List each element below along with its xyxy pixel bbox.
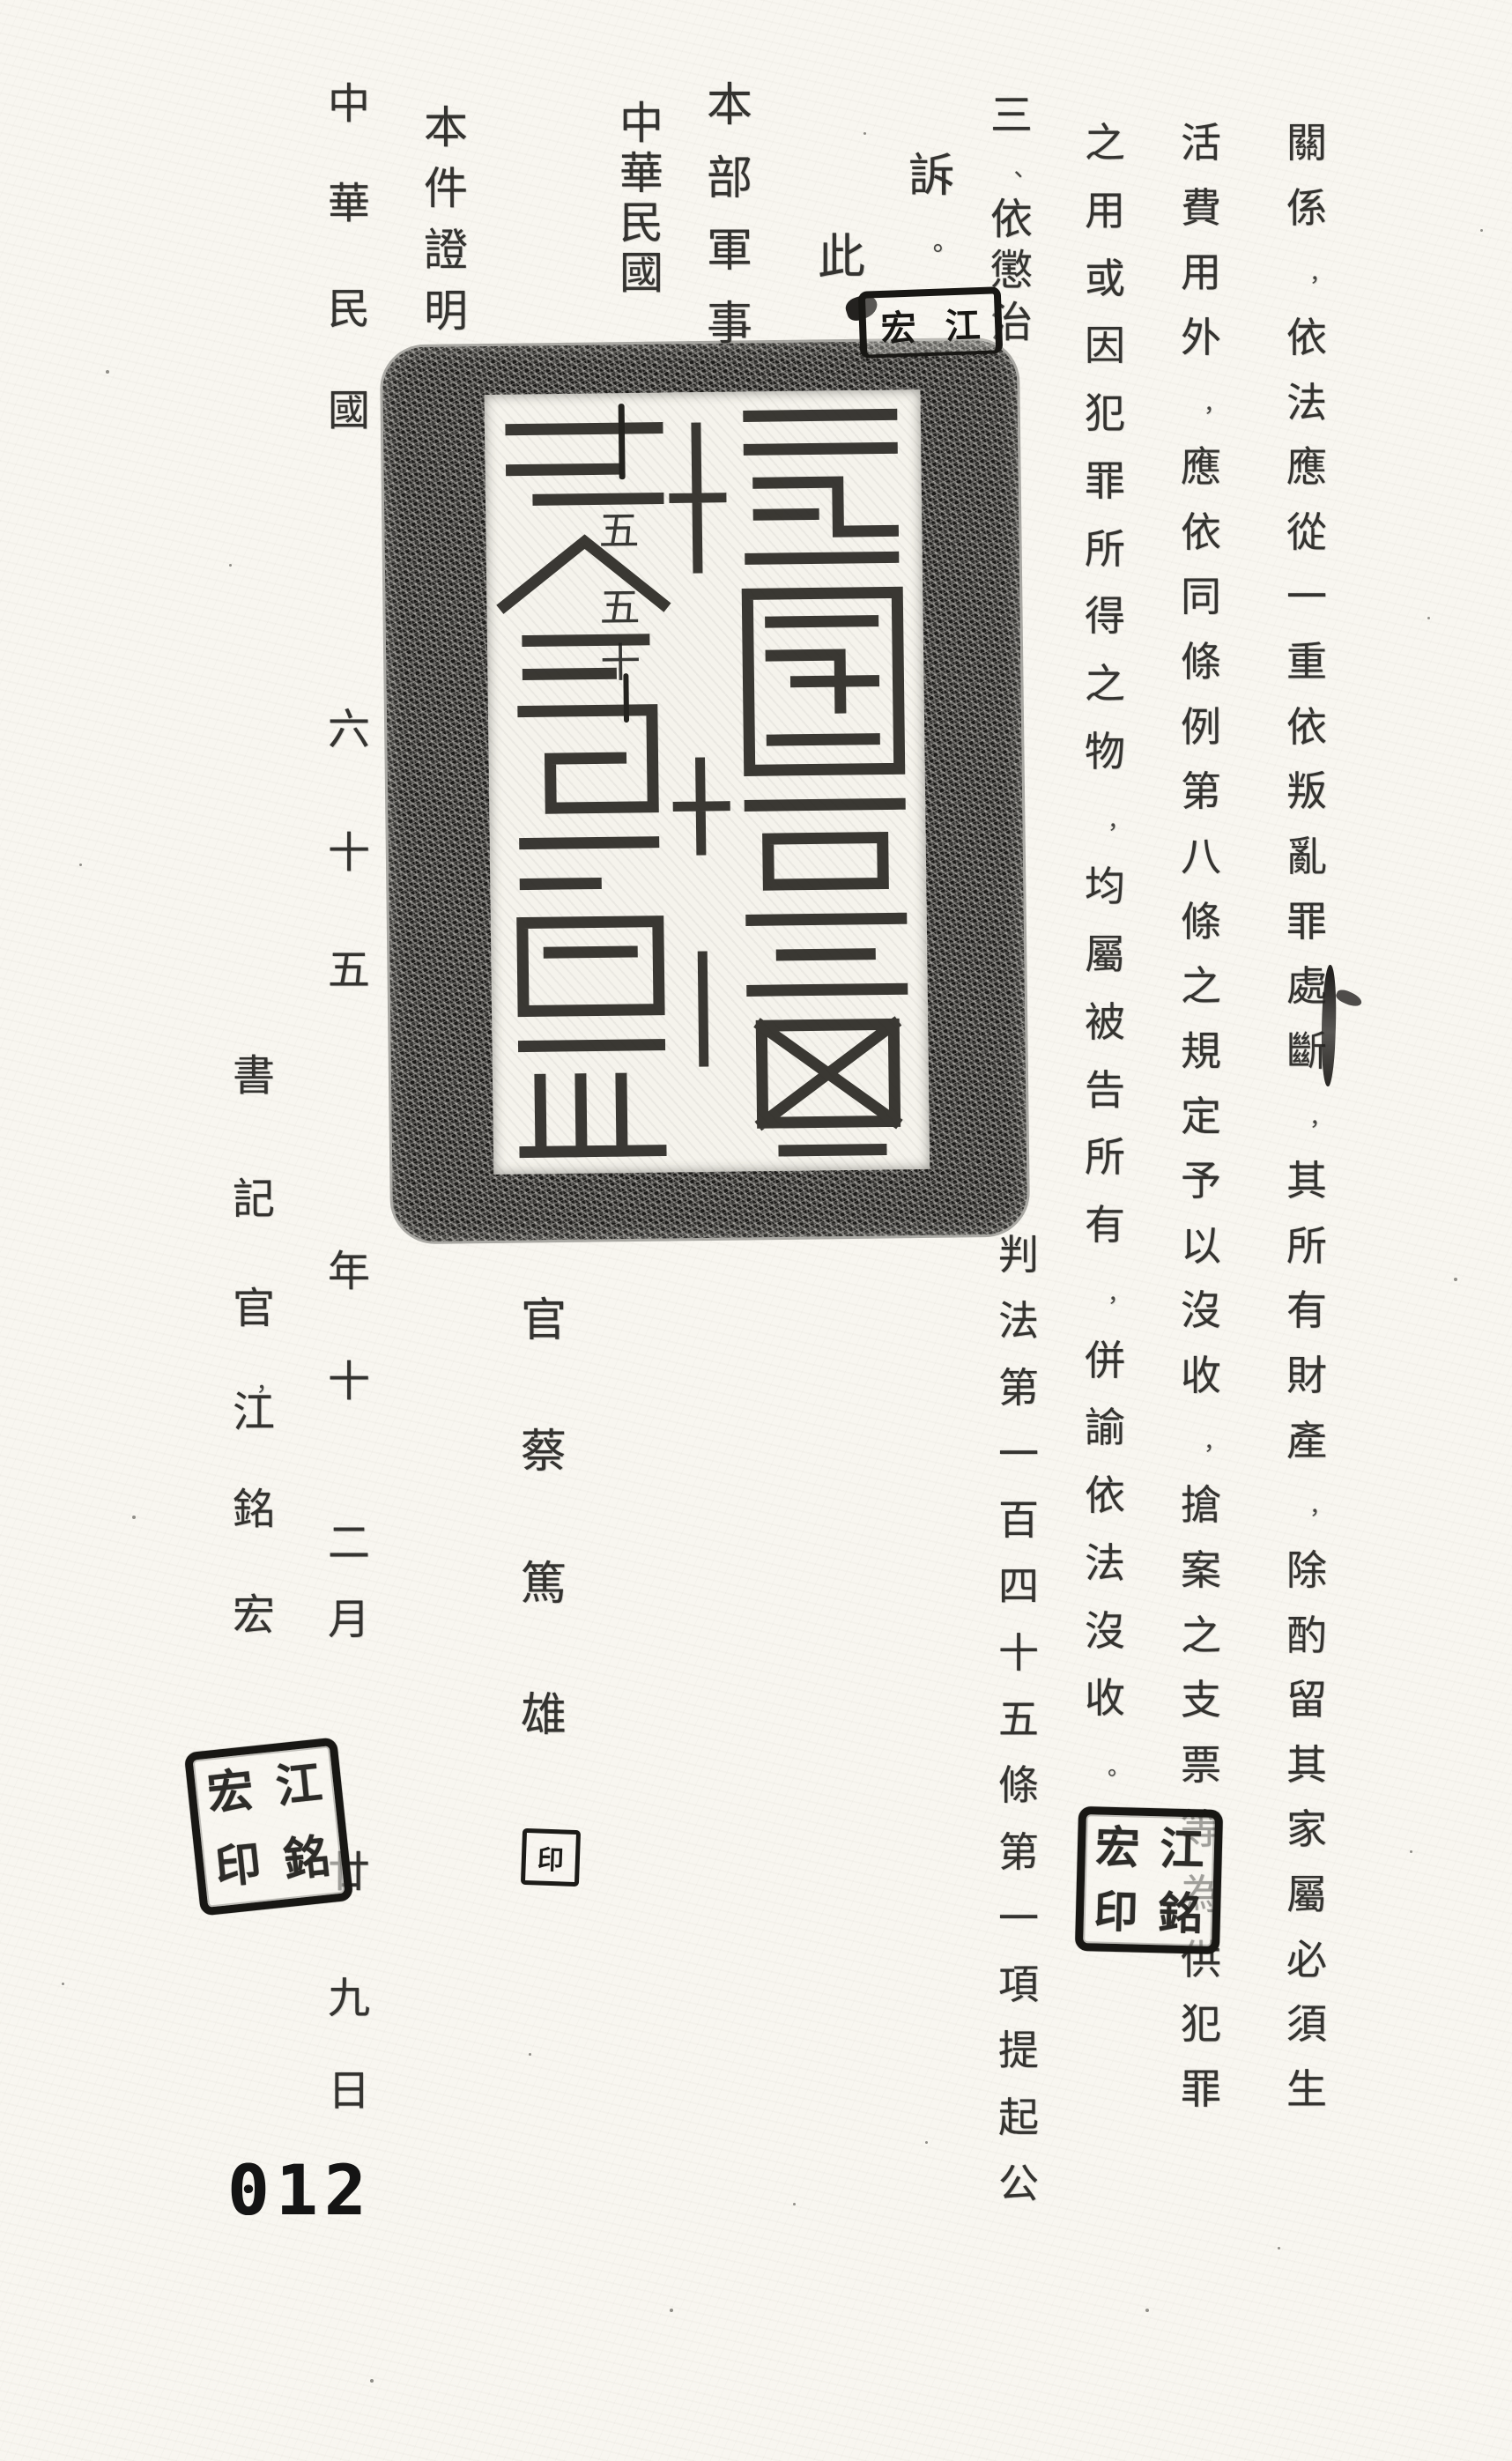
glyph: 係 (1282, 189, 1331, 229)
glyph: 華 (617, 152, 666, 196)
glyph: 得 (1080, 597, 1130, 637)
glyph: 同 (1176, 577, 1226, 618)
official-stamp: 五五十 (382, 340, 1027, 1242)
speckle (370, 2379, 374, 2383)
glyph: 一 (994, 1434, 1043, 1475)
glyph: 江 (229, 1392, 278, 1434)
seal-char: 印 (537, 1837, 565, 1877)
speckle (1480, 229, 1483, 232)
glyph: 六 (324, 709, 374, 752)
glyph: 明 (421, 289, 471, 333)
glyph: 例 (1176, 708, 1226, 748)
seal-char: 宏 (1095, 1825, 1140, 1870)
speckle (529, 2053, 531, 2056)
glyph: 案 (1176, 1551, 1226, 1591)
seal-script-glyph (750, 804, 902, 990)
glyph: 產 (1282, 1421, 1331, 1462)
glyph: 部 (703, 157, 756, 203)
speckle (863, 132, 866, 135)
glyph: 屬 (1282, 1875, 1331, 1916)
glyph: ， (1190, 394, 1240, 416)
glyph: 依 (1080, 1476, 1130, 1516)
glyph: 罪 (1282, 902, 1331, 943)
name-seal-left: 宏 江 印 銘 (184, 1737, 353, 1916)
glyph: 日 (324, 2071, 374, 2113)
seal-script-glyph (747, 592, 899, 770)
glyph: 條 (994, 1766, 1043, 1806)
seal-char: 江 (1160, 1827, 1204, 1872)
glyph: 併 (1080, 1341, 1130, 1382)
glyph: 其 (1282, 1746, 1331, 1786)
seal-script-glyph (523, 710, 654, 885)
glyph: 第 (1176, 772, 1226, 812)
glyph: 項 (994, 1965, 1043, 2005)
glyph: 或 (1080, 259, 1130, 300)
glyph: 罪 (1080, 462, 1130, 502)
glyph: 此 (816, 233, 867, 281)
official-stamp-inner-panel: 五五十 (484, 389, 930, 1175)
seal-char: 印 (1093, 1889, 1138, 1934)
glyph: 書 (229, 1056, 278, 1098)
glyph: 五 (324, 950, 374, 992)
glyph: ， (1094, 811, 1144, 833)
glyph: 民 (617, 201, 666, 245)
glyph: 用 (1080, 191, 1130, 232)
name-seal-right: 宏 江 印 銘 (1075, 1806, 1223, 1954)
glyph: 國 (617, 251, 666, 295)
seal-script-glyph (511, 428, 658, 500)
glyph: 重 (1282, 642, 1331, 683)
glyph: 收 (1176, 1356, 1226, 1397)
glyph: 搶 (1176, 1486, 1226, 1526)
glyph: 十 (994, 1634, 1043, 1674)
glyph: 必 (1282, 1940, 1331, 1981)
glyph: 物 (1080, 732, 1130, 773)
glyph: 本 (421, 106, 471, 150)
handwritten-char: 五 (599, 575, 641, 634)
glyph: 十 (324, 833, 374, 875)
seal-script-glyph (749, 414, 893, 559)
glyph: 應 (1176, 448, 1226, 488)
glyph: 之 (1080, 664, 1130, 705)
seal-script-glyph (673, 427, 729, 1063)
glyph: 、 (1001, 158, 1050, 181)
name-seal-partial: 宏 江 (858, 286, 1004, 359)
document-page: 關係，依法應從一重依叛亂罪處斷，其所有財產，除酌留其家屬必須生活費用外，應依同條… (0, 0, 1512, 2461)
glyph: 有 (1080, 1205, 1130, 1246)
glyph: 雄 (518, 1694, 569, 1739)
speckle (106, 370, 109, 374)
glyph: 。 (1094, 1757, 1144, 1779)
glyph: 關 (1282, 123, 1331, 164)
handwritten-char: 十 (600, 631, 641, 690)
glyph: 年 (324, 1251, 374, 1294)
glyph: ， (1296, 263, 1345, 285)
glyph: 外 (1176, 318, 1226, 359)
glyph: 依 (1282, 318, 1331, 359)
seal-script-glyph (523, 922, 661, 1153)
glyph: 十 (324, 1361, 374, 1404)
speckle (229, 564, 232, 567)
glyph: 五 (994, 1700, 1043, 1740)
speckle (62, 1983, 64, 1985)
glyph: 有 (1282, 1291, 1331, 1331)
seal-char: 宏 (880, 300, 917, 352)
glyph: 二 (324, 1523, 374, 1565)
glyph: 其 (1282, 1161, 1331, 1202)
seal-char: 印 (213, 1842, 263, 1892)
glyph: 提 (994, 2031, 1043, 2072)
glyph: 九 (324, 1978, 374, 2020)
glyph: 官 (518, 1299, 569, 1345)
glyph: 家 (1282, 1810, 1331, 1850)
glyph: 支 (1176, 1680, 1226, 1721)
glyph: 所 (1080, 530, 1130, 570)
speckle (1410, 1850, 1412, 1853)
glyph: 法 (1282, 383, 1331, 424)
speckle (1278, 2247, 1280, 2250)
glyph: 財 (1282, 1356, 1331, 1397)
glyph: 之 (1176, 1616, 1226, 1657)
speckle (79, 864, 82, 866)
glyph: 條 (1176, 902, 1226, 943)
glyph: 依 (987, 199, 1036, 241)
glyph: 用 (1176, 253, 1226, 293)
glyph: 法 (1080, 1544, 1130, 1584)
glyph: 法 (994, 1301, 1043, 1342)
glyph: 犯 (1080, 394, 1130, 434)
seal-char: 江 (945, 297, 982, 349)
seal-char: 銘 (1158, 1891, 1203, 1936)
glyph: 記 (229, 1179, 278, 1221)
glyph: 留 (1282, 1680, 1331, 1721)
glyph: 第 (994, 1833, 1043, 1873)
glyph: 定 (1176, 1097, 1226, 1138)
glyph: 條 (1176, 642, 1226, 683)
glyph: 收 (1080, 1679, 1130, 1719)
glyph: 之 (1080, 123, 1130, 164)
glyph: 之 (1176, 967, 1226, 1007)
speckle (670, 2309, 673, 2312)
glyph: 第 (994, 1368, 1043, 1409)
glyph: ， (1296, 1108, 1345, 1130)
seal-script-glyph (761, 1024, 895, 1151)
glyph: 公 (994, 2164, 1043, 2205)
seal-char: 江 (274, 1761, 324, 1812)
glyph: 百 (994, 1501, 1043, 1541)
glyph: 予 (1176, 1161, 1226, 1202)
glyph: 依 (1282, 708, 1331, 748)
glyph: 三 (987, 95, 1036, 137)
glyph: 生 (1282, 2070, 1331, 2110)
glyph: 所 (1282, 1227, 1331, 1267)
glyph: 國 (324, 390, 374, 433)
glyph: 一 (994, 1899, 1043, 1939)
glyph: 票 (1176, 1746, 1226, 1786)
ink-blob (1334, 988, 1363, 1010)
glyph: 宏 (229, 1595, 278, 1637)
speckle (1454, 1278, 1457, 1281)
speckle (1145, 2309, 1149, 2312)
speckle (132, 1516, 136, 1519)
glyph: 訴 (906, 154, 957, 200)
glyph: 酌 (1282, 1616, 1331, 1657)
glyph: 沒 (1176, 1291, 1226, 1331)
glyph: 蔡 (518, 1430, 569, 1476)
glyph: 。 (920, 230, 971, 256)
glyph: 叛 (1282, 772, 1331, 812)
personal-seal-small: 印 (521, 1828, 581, 1887)
glyph: 證 (421, 228, 471, 272)
glyph: 民 (324, 289, 374, 331)
speckle (1427, 617, 1430, 619)
glyph: 所 (1080, 1138, 1130, 1178)
glyph: 屬 (1080, 935, 1130, 975)
handwritten-char: 五 (598, 499, 640, 558)
glyph: 活 (1176, 123, 1226, 164)
seal-char: 銘 (282, 1835, 332, 1885)
glyph: 判 (994, 1235, 1043, 1276)
glyph: 官 (229, 1288, 278, 1331)
seal-char: 宏 (205, 1768, 256, 1819)
glyph: 四 (994, 1567, 1043, 1607)
seal-script-glyphs (484, 389, 930, 1175)
glyph: 亂 (1282, 837, 1331, 878)
glyph: 應 (1282, 448, 1331, 488)
glyph: ， (1190, 1432, 1240, 1454)
glyph: 銘 (229, 1489, 278, 1531)
glyph: 月 (324, 1599, 374, 1642)
glyph: 被 (1080, 1003, 1130, 1043)
handwriting-stroke (619, 404, 626, 479)
glyph: 八 (1176, 837, 1226, 878)
glyph: 一 (1282, 577, 1331, 618)
glyph: 犯 (1176, 2005, 1226, 2045)
speckle (793, 2203, 796, 2205)
glyph: 事 (703, 302, 756, 348)
glyph: 沒 (1080, 1612, 1130, 1652)
glyph: 諭 (1080, 1408, 1130, 1449)
glyph: 中 (617, 101, 666, 145)
glyph: 軍 (703, 229, 756, 275)
glyph: 規 (1176, 1032, 1226, 1072)
glyph: 除 (1282, 1551, 1331, 1591)
page-number: 012 (227, 2152, 373, 2231)
glyph: ， (1094, 1284, 1144, 1306)
glyph: 以 (1176, 1227, 1226, 1267)
glyph: 中 (324, 84, 374, 126)
glyph: 均 (1080, 867, 1130, 908)
speckle (925, 2141, 928, 2144)
glyph: 依 (1176, 513, 1226, 553)
glyph: 須 (1282, 2005, 1331, 2045)
glyph: ， (1296, 1496, 1345, 1518)
glyph: 告 (1080, 1071, 1130, 1111)
glyph: 從 (1282, 513, 1331, 553)
glyph: 費 (1176, 189, 1226, 229)
glyph: 華 (324, 183, 374, 226)
glyph: 篤 (518, 1562, 569, 1608)
glyph: 本 (703, 84, 756, 130)
glyph: 起 (994, 2098, 1043, 2139)
glyph: 罪 (1176, 2070, 1226, 2110)
glyph: 因 (1080, 326, 1130, 367)
glyph: 件 (421, 167, 471, 211)
